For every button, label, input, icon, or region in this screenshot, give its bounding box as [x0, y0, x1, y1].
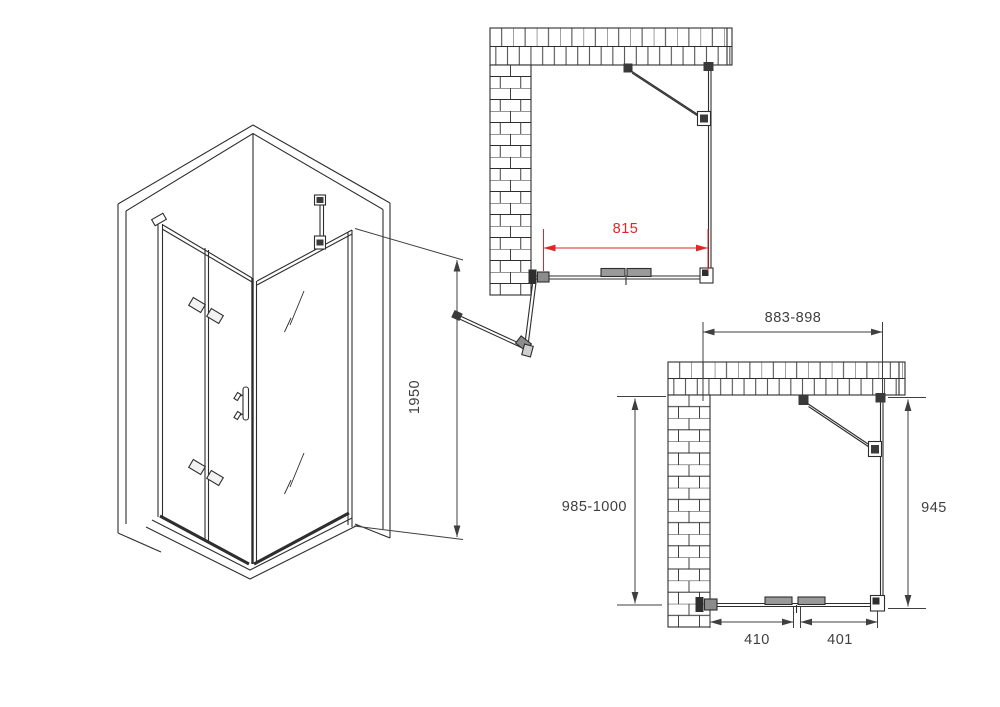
magnet-profile	[765, 597, 792, 605]
glass-wall-bracket	[876, 393, 886, 403]
door-panel-label: 410	[744, 632, 770, 648]
arrow-left-icon	[703, 329, 715, 336]
glass-reflection-marks	[285, 291, 305, 494]
magnet-profile	[601, 269, 625, 277]
arrow-down-icon	[454, 526, 461, 538]
magnet-profile	[798, 597, 825, 605]
arrow-up-icon	[905, 400, 912, 412]
arrow-left-icon	[710, 619, 722, 626]
door-frame-post-cap	[152, 213, 167, 226]
arrow-right-icon	[782, 619, 794, 626]
glass-wall-bracket	[704, 62, 714, 71]
shower-enclosure-technical-drawing: 1950 81	[0, 0, 1000, 707]
overall-depth-label: 985-1000	[562, 499, 627, 515]
wall-hinge-body	[705, 599, 718, 610]
support-bar-plan	[799, 395, 882, 457]
hinge-block	[207, 309, 224, 324]
arrow-down-icon	[632, 592, 639, 604]
side-glass-plan	[881, 395, 884, 607]
door-handle	[234, 387, 249, 420]
wall-hinge	[529, 270, 537, 285]
arrow-left-icon	[801, 619, 813, 626]
side-panel-label: 945	[921, 500, 947, 516]
arrow-up-icon	[454, 260, 461, 272]
opening-dimension: 815	[544, 221, 709, 271]
overall-width-label: 883-898	[765, 310, 822, 326]
dimensions: 883-898 985-1000 945 410 401	[562, 310, 947, 648]
bifold-door-glass-edges	[163, 225, 252, 542]
arrow-down-icon	[905, 595, 912, 607]
corner-bracket-core	[873, 598, 880, 605]
side-glass-plan	[709, 65, 712, 277]
wall-hinge-body	[538, 272, 550, 282]
fixed-panel-label: 401	[827, 632, 853, 648]
opening-dimension-label: 815	[613, 221, 639, 237]
plan-view-door-closed: 883-898 985-1000 945 410 401	[562, 310, 947, 648]
room-walls	[118, 125, 390, 552]
arrow-up-icon	[632, 399, 639, 411]
height-dimension: 1950	[354, 229, 463, 540]
arrow-right-icon	[871, 329, 883, 336]
brick-wall-top	[490, 28, 732, 65]
wall-hinge	[696, 597, 704, 612]
height-dimension-label: 1950	[407, 380, 423, 414]
isometric-view: 1950	[118, 125, 463, 579]
brick-wall-top	[668, 362, 905, 395]
arrow-left-icon	[544, 245, 556, 252]
support-bar-plan	[624, 64, 711, 126]
arrow-right-icon	[696, 245, 708, 252]
door-frame-post	[158, 222, 163, 518]
plan-view-door-open: 815	[451, 28, 732, 357]
hinge-block	[189, 298, 206, 313]
hinge-block	[189, 460, 206, 475]
hinge-block	[207, 471, 224, 486]
arrow-right-icon	[866, 619, 878, 626]
magnet-profile	[627, 269, 651, 277]
side-glass-panel	[257, 230, 352, 527]
brick-wall-left	[490, 65, 531, 295]
drawing-sheet: 1950 81	[0, 0, 1000, 707]
support-bar-iso	[315, 195, 326, 249]
brick-wall-left	[668, 395, 710, 627]
